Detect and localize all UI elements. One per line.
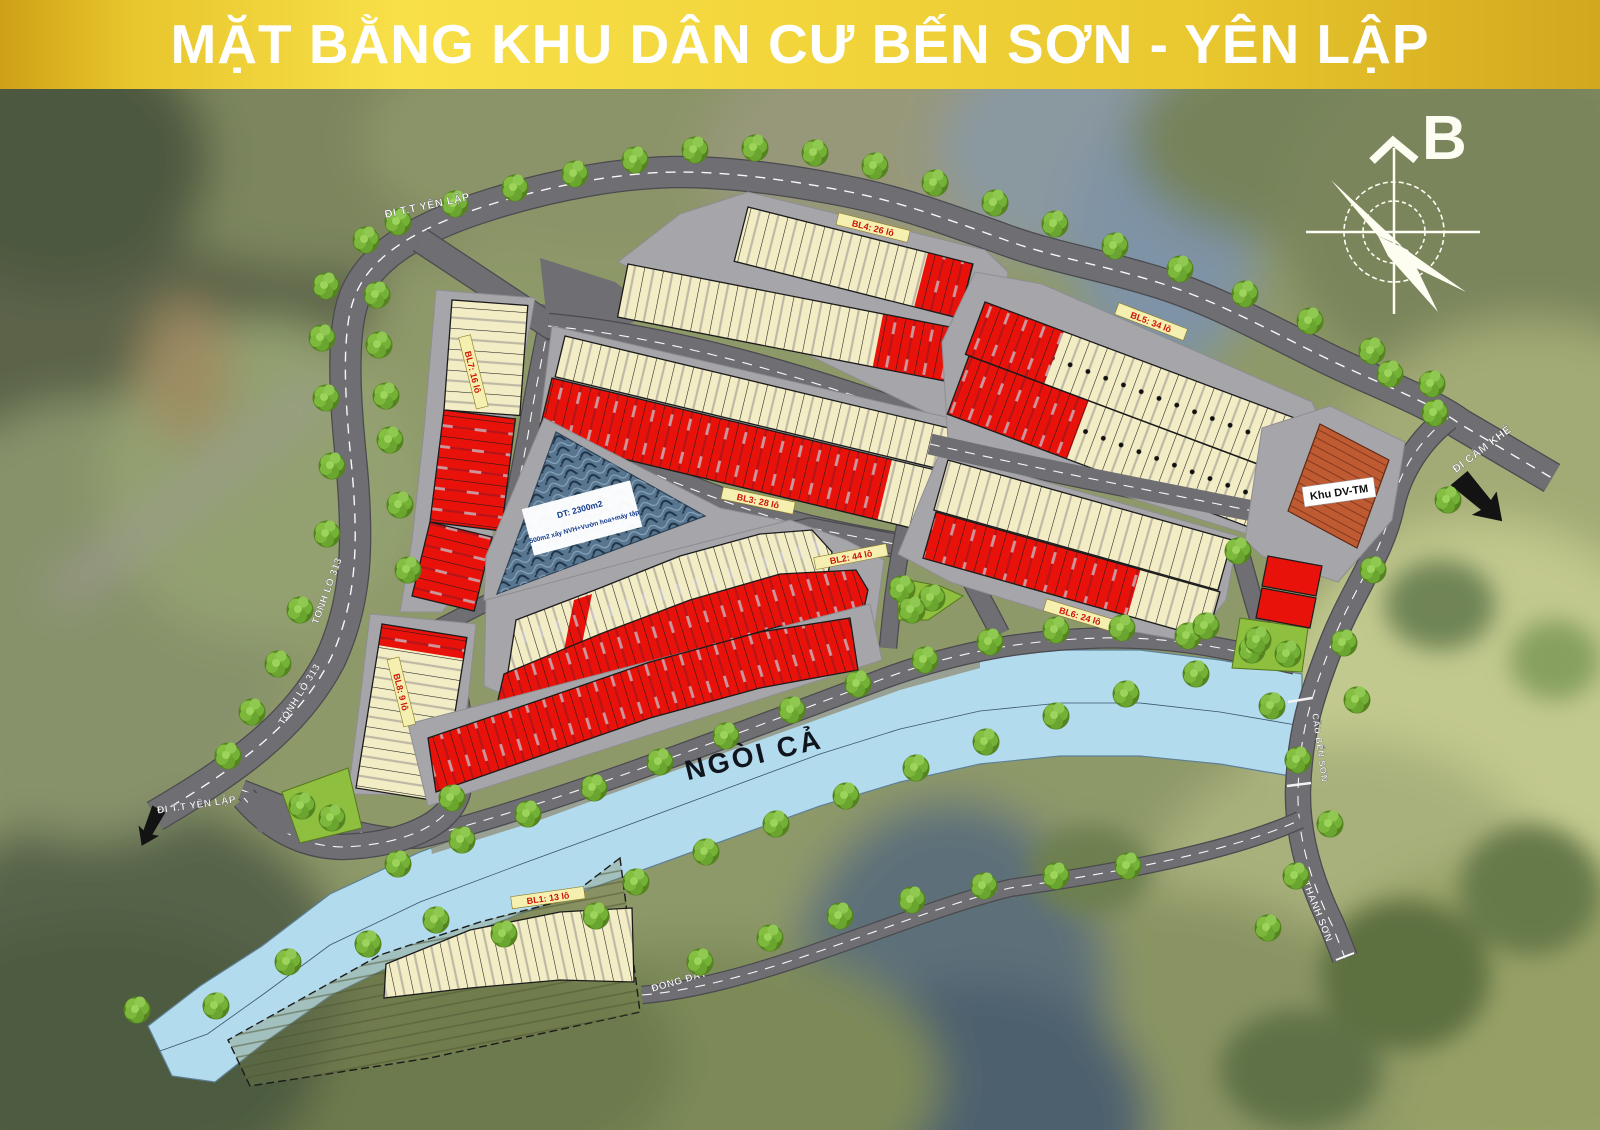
svg-text:B: B bbox=[1422, 104, 1467, 173]
svg-text:MẶT BẰNG KHU DÂN CƯ BẾN SƠN -: MẶT BẰNG KHU DÂN CƯ BẾN SƠN - YÊN LẬP bbox=[170, 13, 1429, 75]
